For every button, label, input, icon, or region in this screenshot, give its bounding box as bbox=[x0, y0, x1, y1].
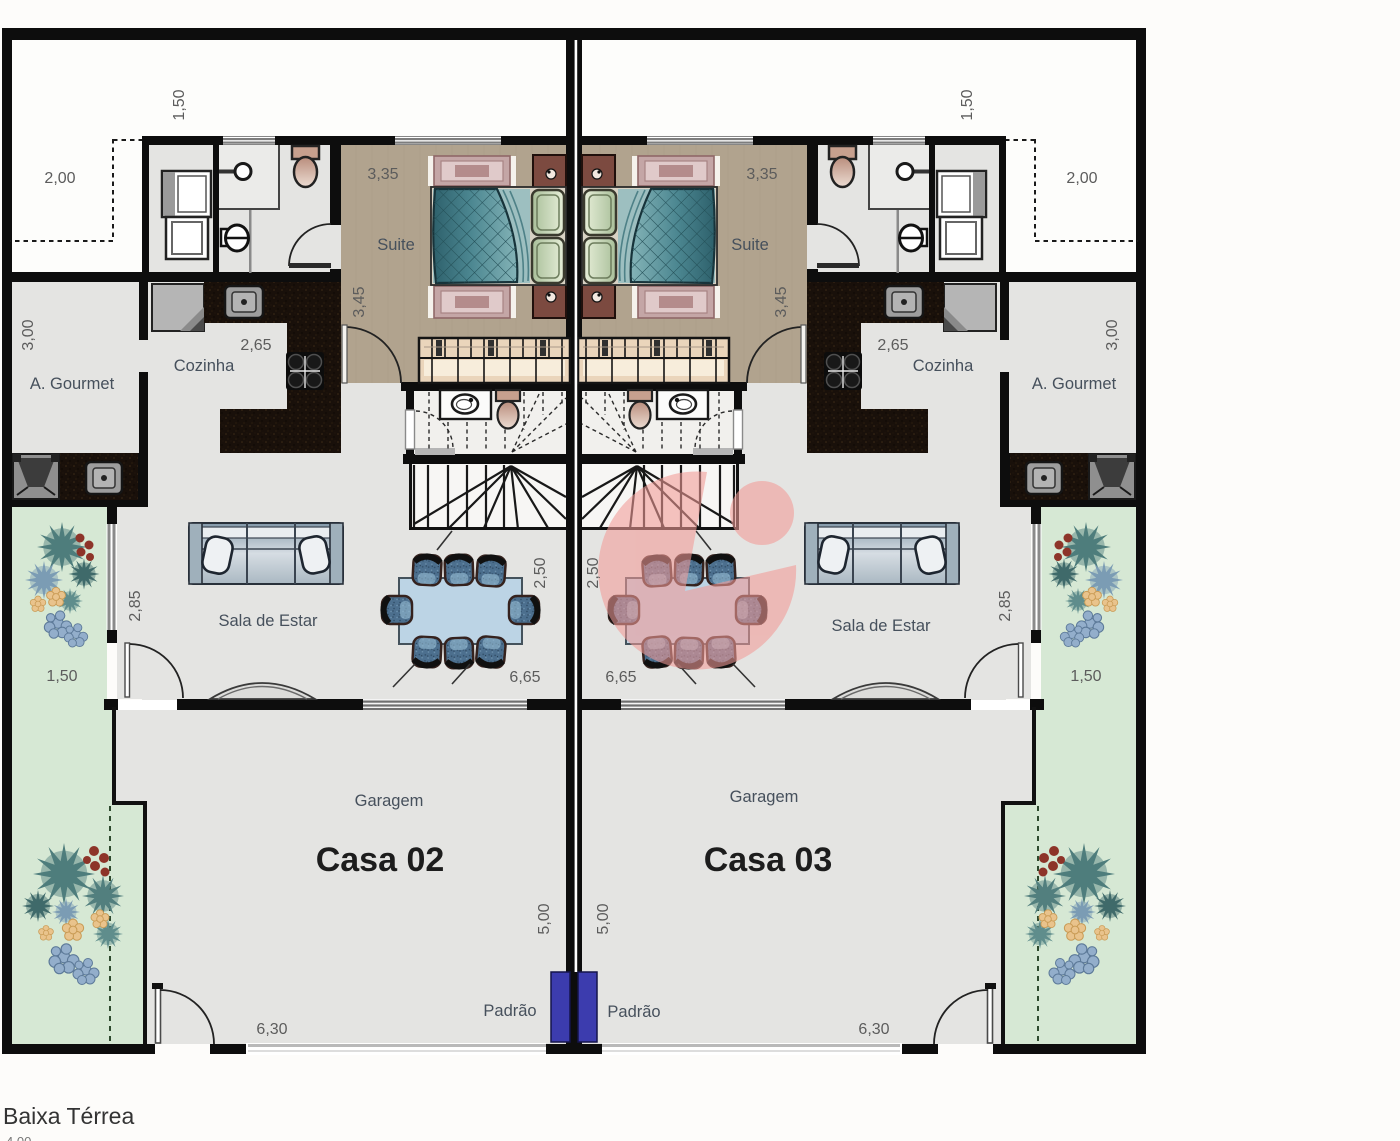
svg-text:Sala de Estar: Sala de Estar bbox=[831, 617, 931, 635]
svg-text:3,45: 3,45 bbox=[773, 286, 790, 317]
svg-text:6,30: 6,30 bbox=[858, 1021, 889, 1038]
svg-text:1,50: 1,50 bbox=[46, 668, 77, 685]
svg-text:2,50: 2,50 bbox=[585, 557, 602, 588]
svg-text:Cozinha: Cozinha bbox=[913, 357, 974, 375]
svg-text:2,00: 2,00 bbox=[1066, 170, 1097, 187]
svg-text:5,00: 5,00 bbox=[536, 903, 553, 934]
svg-text:3,35: 3,35 bbox=[367, 166, 398, 183]
svg-text:3,00: 3,00 bbox=[1104, 319, 1121, 350]
svg-text:3,35: 3,35 bbox=[746, 166, 777, 183]
svg-text:3,00: 3,00 bbox=[20, 319, 37, 350]
svg-text:Cozinha: Cozinha bbox=[174, 357, 235, 375]
svg-text:6,65: 6,65 bbox=[605, 669, 636, 686]
svg-text:2,85: 2,85 bbox=[127, 590, 144, 621]
svg-text:5,00: 5,00 bbox=[595, 903, 612, 934]
svg-text:2,65: 2,65 bbox=[877, 337, 908, 354]
svg-text:Casa 02: Casa 02 bbox=[316, 841, 445, 879]
svg-text:Garagem: Garagem bbox=[730, 788, 799, 806]
svg-text:2,50: 2,50 bbox=[532, 557, 549, 588]
svg-text:1,50: 1,50 bbox=[1070, 668, 1101, 685]
svg-text:Baixa Térrea: Baixa Térrea bbox=[3, 1103, 134, 1129]
svg-text:6,65: 6,65 bbox=[509, 669, 540, 686]
svg-text:6,30: 6,30 bbox=[256, 1021, 287, 1038]
svg-text:2,00: 2,00 bbox=[44, 170, 75, 187]
svg-text:1,50: 1,50 bbox=[959, 89, 976, 120]
svg-text:4,00: 4,00 bbox=[6, 1134, 31, 1141]
svg-text:2,85: 2,85 bbox=[997, 590, 1014, 621]
svg-text:Suite: Suite bbox=[731, 236, 769, 254]
svg-text:3,45: 3,45 bbox=[351, 286, 368, 317]
svg-text:2,65: 2,65 bbox=[240, 337, 271, 354]
svg-text:1,50: 1,50 bbox=[171, 89, 188, 120]
svg-text:Padrão: Padrão bbox=[483, 1002, 536, 1020]
svg-text:Garagem: Garagem bbox=[355, 792, 424, 810]
svg-text:Sala de Estar: Sala de Estar bbox=[218, 612, 318, 630]
svg-text:Casa 03: Casa 03 bbox=[704, 841, 833, 879]
svg-text:Padrão: Padrão bbox=[607, 1003, 660, 1021]
svg-text:A. Gourmet: A. Gourmet bbox=[1032, 375, 1117, 393]
svg-text:Suite: Suite bbox=[377, 236, 415, 254]
svg-text:A. Gourmet: A. Gourmet bbox=[30, 375, 115, 393]
